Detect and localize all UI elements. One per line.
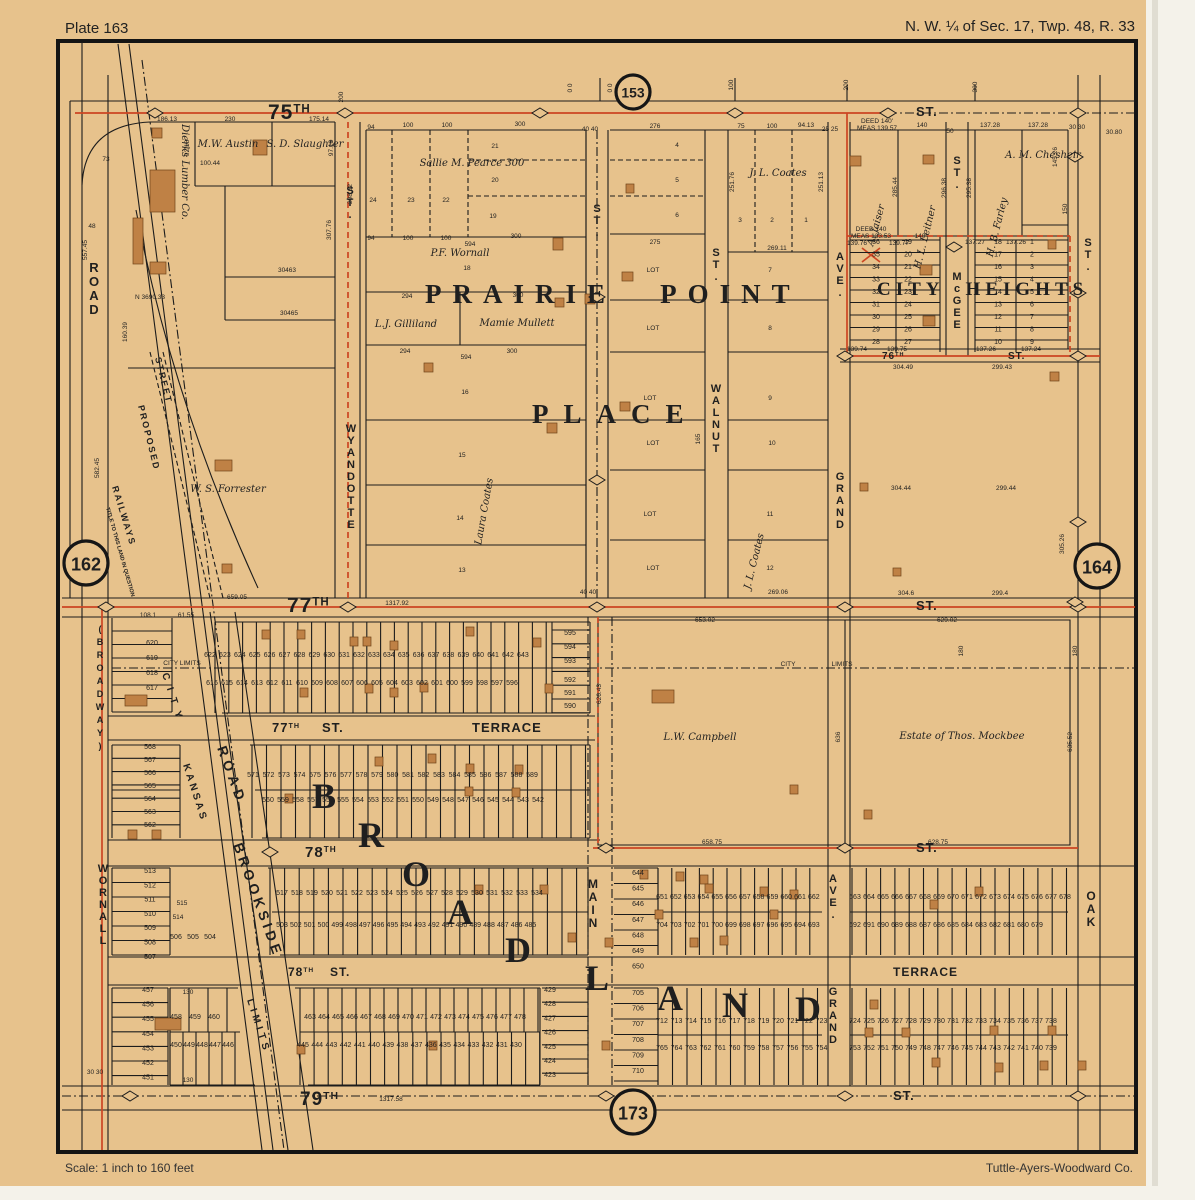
dimension-label: 94: [367, 235, 375, 242]
lot-number: 628: [294, 652, 306, 659]
dimension-label: 300: [515, 121, 526, 128]
lot-number: 669: [933, 894, 945, 901]
building-footprint: [923, 316, 935, 326]
dimension-label: 635.52: [1067, 732, 1074, 752]
lot-number: 731: [947, 1018, 959, 1025]
lot-number: 12: [994, 314, 1002, 321]
lot-number: 667: [905, 894, 917, 901]
lot-number: 648: [632, 932, 644, 939]
lot-number: 765: [656, 1045, 668, 1052]
lot-number: 647: [632, 917, 644, 924]
lot-number: 594: [564, 644, 576, 651]
street-ordinal-suffix: TH: [303, 967, 314, 974]
dimension-label: 100: [403, 122, 414, 129]
dimension-label: 100: [403, 235, 414, 242]
plat-map-sheet: { "header": {"left": "Plate 163", "right…: [0, 0, 1195, 1200]
lot-number: 644: [632, 870, 644, 877]
lot-number: 469: [388, 1014, 400, 1021]
lot-number: 599: [461, 680, 473, 687]
subdivision-name: PRAIRIE POINT: [425, 279, 801, 309]
lot-number: 693: [808, 922, 820, 929]
street-suffix-label: ST.: [322, 720, 344, 735]
building-footprint: [363, 637, 371, 646]
plate-ref-162: 162: [64, 541, 108, 585]
lot-number: 696: [767, 922, 779, 929]
street-name-vertical: MAIN: [588, 877, 598, 930]
dimension-label: 175.14: [309, 116, 329, 123]
lot-number: 657: [739, 894, 751, 901]
lot-number: 424: [544, 1058, 556, 1065]
dimension-label: 137.28: [980, 122, 1000, 129]
building-footprint: [350, 637, 358, 646]
building-footprint: [375, 757, 383, 766]
lot-number: 467: [360, 1014, 372, 1021]
building-footprint: [930, 900, 938, 909]
lot-number: 11: [994, 327, 1001, 334]
lot-number: 660: [780, 894, 792, 901]
subdivision-name-broadland-letter: A: [657, 978, 683, 1018]
lot-number: 705: [632, 990, 644, 997]
lot-number: 443: [326, 1042, 338, 1049]
dimension-label: 30 30: [1069, 124, 1086, 131]
lot-number: 28: [872, 339, 880, 346]
lot-number: 502: [290, 922, 302, 929]
dimension-label: 100.44: [200, 160, 220, 167]
lot-number: 31: [872, 302, 880, 309]
lot-number: 656: [725, 894, 737, 901]
dimension-label: 50: [946, 128, 954, 135]
dimension-label: 100: [442, 122, 453, 129]
lot-number: 588: [511, 772, 523, 779]
dimension-label: CITY: [781, 661, 796, 668]
lot-number: 559: [277, 797, 289, 804]
dimension-label: LIMITS: [832, 661, 854, 668]
street-name-vertical: GRAND: [829, 986, 838, 1046]
dimension-label: 299.44: [996, 485, 1016, 492]
dimension-label: 137.27: [965, 239, 985, 246]
lot-number: 2: [1030, 252, 1034, 259]
lot-number: 532: [501, 890, 513, 897]
dimension-label: 18: [463, 265, 471, 272]
dimension-label: 24: [369, 197, 377, 204]
lot-number: 455: [142, 1016, 154, 1023]
lot-number: 555: [337, 797, 349, 804]
building-footprint: [390, 641, 398, 650]
lot-number: 747: [933, 1045, 945, 1052]
lot-number: 460: [208, 1014, 220, 1021]
dimension-label: 515: [177, 900, 188, 907]
lot-number: 25: [904, 314, 912, 321]
lot-number: 494: [400, 922, 412, 929]
lot-number: 735: [1003, 1018, 1015, 1025]
lot-number: 605: [371, 680, 383, 687]
owner-label: M.W. Austin: [197, 139, 259, 150]
lot-number: 729: [919, 1018, 931, 1025]
lot-number: 8: [1030, 327, 1034, 334]
dimension-label: 30465: [280, 310, 298, 317]
lot-number: 533: [516, 890, 528, 897]
lot-number: 753: [849, 1045, 861, 1052]
lot-number: 496: [373, 922, 385, 929]
lot-number: 745: [961, 1045, 973, 1052]
lot-number: 638: [443, 652, 455, 659]
dimension-label: 0 0: [607, 83, 614, 92]
street-suffix-label: ST.: [916, 598, 938, 613]
lot-number: 450: [170, 1042, 182, 1049]
lot-number: 690: [877, 922, 889, 929]
lot-number: 452: [142, 1060, 154, 1067]
dimension-label: 653.02: [695, 617, 715, 624]
lot-number: 709: [632, 1052, 644, 1059]
dimension-label: 300: [511, 233, 522, 240]
dimension-label: 19: [489, 213, 497, 220]
lot-number: 518: [291, 890, 303, 897]
lot-number: 590: [564, 703, 576, 710]
lot-number: 655: [711, 894, 723, 901]
lot-number: 444: [311, 1042, 323, 1049]
building-footprint: [790, 785, 798, 794]
lot-number: 568: [144, 744, 156, 751]
lot-number: 701: [698, 922, 710, 929]
street-suffix-label: ST.: [330, 965, 350, 979]
lot-number: 700: [711, 922, 723, 929]
dimension-label: 100: [441, 235, 452, 242]
building-footprint: [128, 830, 137, 839]
lot-number: 674: [1003, 894, 1015, 901]
dimension-label: 275: [650, 239, 661, 246]
lot-number: 639: [457, 652, 469, 659]
lot-number: 548: [442, 797, 454, 804]
scan-edge-right-shadow: [1152, 0, 1158, 1200]
lot-number: 580: [387, 772, 399, 779]
lot-number: 640: [472, 652, 484, 659]
lot-number: 449: [183, 1042, 195, 1049]
dimension-label: 230: [225, 116, 236, 123]
dimension-label: 251.13: [818, 172, 825, 192]
lot-number: 634: [383, 652, 395, 659]
lot-number: 739: [1045, 1045, 1057, 1052]
dimension-label: 108.1: [140, 612, 157, 619]
dimension-label: 137.28: [1028, 122, 1048, 129]
building-footprint: [1048, 240, 1056, 249]
lot-number: 600: [446, 680, 458, 687]
owner-label: Estate of Thos. Mockbee: [898, 731, 1024, 742]
building-footprint: [902, 1028, 910, 1037]
plate-ref-173: 173: [611, 1090, 655, 1134]
street-suffix-label: TERRACE: [472, 720, 542, 735]
dimension-label: 1: [804, 217, 808, 224]
lot-number: 521: [336, 890, 348, 897]
dimension-label: 100: [767, 123, 778, 130]
lot-number: 751: [877, 1045, 889, 1052]
lot-number: 456: [142, 1002, 154, 1009]
lot-number: 749: [905, 1045, 917, 1052]
lot-number: 507: [144, 954, 156, 961]
dimension-label: 180: [1072, 645, 1079, 656]
lot-number: 678: [1059, 894, 1071, 901]
dimension-label: 300: [507, 348, 518, 355]
street-number: 77: [287, 594, 312, 617]
lot-number: 692: [849, 922, 861, 929]
building-footprint: [390, 688, 398, 697]
dimension-label: 659.05: [227, 594, 247, 601]
street-number: 79: [300, 1089, 323, 1110]
dimension-label: 160.39: [122, 322, 129, 342]
building-footprint: [133, 218, 143, 264]
lot-number: 468: [374, 1014, 386, 1021]
dimension-label: 10: [768, 440, 776, 447]
owner-label: A. M. Chesheir: [1004, 150, 1082, 161]
dimension-label: 3: [738, 217, 742, 224]
lot-number: 730: [933, 1018, 945, 1025]
lot-number: 714: [685, 1018, 697, 1025]
lot-number: 501: [304, 922, 316, 929]
lot-number: 440: [368, 1042, 380, 1049]
dimension-label: 9: [768, 395, 772, 402]
lot-number: 633: [368, 652, 380, 659]
dimension-label: MEAS 139.57: [857, 125, 897, 132]
lot-number: 474: [458, 1014, 470, 1021]
dimension-label: 13: [458, 567, 466, 574]
dimension-label: 30463: [278, 267, 296, 274]
dimension-label: 251.76: [729, 172, 736, 192]
dimension-label: CITY LIMITS: [163, 660, 201, 667]
lot-number: 459: [189, 1014, 201, 1021]
dimension-label: 139.74: [847, 346, 867, 353]
lot-number: 445: [297, 1042, 309, 1049]
lot-number: 470: [402, 1014, 414, 1021]
dimension-label: 200: [338, 91, 345, 102]
lot-number: 16: [994, 264, 1002, 271]
dimension-label: LOT: [647, 440, 660, 447]
building-footprint: [893, 568, 901, 576]
subdivision-name-broadland-letter: D: [795, 989, 821, 1029]
subdivision-name: PLACE: [532, 399, 699, 429]
lot-number: 498: [345, 922, 357, 929]
subdivision-name-broadland-letter: L: [585, 958, 609, 998]
lot-number: 602: [416, 680, 428, 687]
dimension-label: LOT: [647, 565, 660, 572]
dimension-label: 30 30: [87, 1069, 104, 1076]
lot-number: 622: [204, 652, 216, 659]
dimension-label: 75: [737, 123, 745, 130]
dimension-label: N 3690.33: [135, 294, 165, 301]
lot-number: 703: [670, 922, 682, 929]
lot-number: 505: [187, 934, 199, 941]
lot-number: 435: [439, 1042, 451, 1049]
dimension-label: DEED 140': [861, 118, 893, 125]
lot-number: 473: [444, 1014, 456, 1021]
dimension-label: 139.76: [847, 240, 867, 247]
building-footprint: [222, 564, 232, 573]
plate-ref-number: 164: [1082, 557, 1112, 577]
lot-number: 595: [564, 630, 576, 637]
building-footprint: [995, 1063, 1003, 1072]
lot-number: 679: [1031, 922, 1043, 929]
dimension-label: 130: [183, 1077, 194, 1084]
lot-number: 553: [367, 797, 379, 804]
lot-number: 637: [428, 652, 440, 659]
dimension-label: 269.11: [767, 245, 787, 252]
lot-number: 425: [544, 1044, 556, 1051]
lot-number: 682: [989, 922, 1001, 929]
street-ordinal-suffix: TH: [895, 352, 904, 358]
lot-number: 523: [366, 890, 378, 897]
dimension-label: 269.06: [768, 589, 788, 596]
lot-number: 471: [416, 1014, 428, 1021]
lot-number: 513: [144, 868, 156, 875]
lot-number: 664: [863, 894, 875, 901]
dimension-label: 304.49: [893, 364, 913, 371]
lot-number: 649: [632, 948, 644, 955]
lot-number: 759: [743, 1045, 755, 1052]
lot-number: 542: [532, 797, 544, 804]
subdivision-name-broadland-letter: O: [402, 854, 430, 894]
lot-number: 564: [144, 796, 156, 803]
lot-number: 733: [975, 1018, 987, 1025]
dimension-label: 582.45: [94, 458, 101, 478]
lot-number: 464: [318, 1014, 330, 1021]
building-footprint: [655, 910, 663, 919]
lot-number: 746: [947, 1045, 959, 1052]
lot-number: 587: [495, 772, 507, 779]
dimension-label: 7: [768, 267, 772, 274]
dimension-label: 14: [456, 515, 464, 522]
lot-number: 476: [486, 1014, 498, 1021]
dimension-label: 21: [491, 143, 499, 150]
lot-number: 547: [457, 797, 469, 804]
lot-number: 764: [671, 1045, 683, 1052]
building-footprint: [923, 155, 934, 164]
dimension-label: 40 40: [580, 589, 597, 596]
lot-number: 720: [772, 1018, 784, 1025]
street-number: 76: [882, 351, 895, 362]
lot-number: 665: [877, 894, 889, 901]
lot-number: 661: [794, 894, 806, 901]
dimension-label: 1317.92: [385, 600, 409, 607]
publisher: Tuttle-Ayers-Woodward Co.: [986, 1161, 1133, 1175]
dimension-label: 307.76: [326, 220, 333, 240]
lot-number: 688: [905, 922, 917, 929]
dimension-label: 305.26: [1059, 534, 1066, 554]
building-footprint: [1078, 1061, 1086, 1070]
lot-number: 702: [684, 922, 696, 929]
lot-number: 549: [427, 797, 439, 804]
dimension-label: 22: [442, 197, 450, 204]
lot-number: 432: [482, 1042, 494, 1049]
building-footprint: [770, 910, 778, 919]
lot-number: 635: [398, 652, 410, 659]
building-footprint: [1050, 372, 1059, 381]
lot-number: 610: [296, 680, 308, 687]
lot-number: 757: [772, 1045, 784, 1052]
dimension-label: 30.80: [1106, 129, 1123, 136]
lot-number: 585: [464, 772, 476, 779]
lot-number: 742: [1003, 1045, 1015, 1052]
lot-number: 726: [877, 1018, 889, 1025]
lot-number: 738: [1045, 1018, 1057, 1025]
lot-number: 737: [1031, 1018, 1043, 1025]
lot-number: 684: [961, 922, 973, 929]
lot-number: 485: [525, 922, 537, 929]
dimension-label: 165: [695, 433, 702, 444]
lot-number: 672: [975, 894, 987, 901]
dimension-label: LOT: [647, 325, 660, 332]
lot-number: 754: [816, 1045, 828, 1052]
lot-number: 663: [849, 894, 861, 901]
lot-number: 543: [517, 797, 529, 804]
street-number: 78: [305, 844, 324, 861]
building-footprint: [860, 483, 868, 491]
lot-number: 567: [144, 757, 156, 764]
lot-number: 466: [346, 1014, 358, 1021]
lot-number: 712: [656, 1018, 668, 1025]
street-suffix-label: ST.: [916, 104, 938, 119]
lot-number: 689: [891, 922, 903, 929]
lot-number: 30: [872, 314, 880, 321]
lot-number: 727: [891, 1018, 903, 1025]
lot-number: 704: [656, 922, 668, 929]
lot-number: 699: [725, 922, 737, 929]
dimension-label: 626.43: [596, 684, 603, 704]
lot-number: 430: [510, 1042, 522, 1049]
owner-label: W. S. Forrester: [190, 484, 267, 495]
lot-number: 487: [497, 922, 509, 929]
lot-number: 708: [632, 1037, 644, 1044]
owner-label: L.W. Campbell: [663, 732, 737, 743]
lot-number: 687: [919, 922, 931, 929]
lot-number: 531: [486, 890, 498, 897]
lot-number: 447: [209, 1042, 221, 1049]
plate-ref-number: 162: [71, 554, 101, 574]
lot-number: 581: [402, 772, 414, 779]
dimension-label: 300: [972, 81, 979, 92]
lot-number: 566: [144, 770, 156, 777]
lot-number: 465: [332, 1014, 344, 1021]
lot-number: 734: [989, 1018, 1001, 1025]
dimension-label: 15: [458, 452, 466, 459]
dimension-label: 285.44: [892, 177, 899, 197]
lot-number: 666: [891, 894, 903, 901]
lot-number: 654: [698, 894, 710, 901]
lot-number: 675: [1017, 894, 1029, 901]
lot-number: 750: [891, 1045, 903, 1052]
owner-label: L.J. Gilliland: [374, 319, 437, 330]
owner-label: J. L. Coates: [747, 168, 806, 179]
lot-number: 477: [500, 1014, 512, 1021]
lot-number: 442: [340, 1042, 352, 1049]
lot-number: 492: [428, 922, 440, 929]
lot-number: 685: [947, 922, 959, 929]
lot-number: 653: [684, 894, 696, 901]
lot-number: 437: [411, 1042, 423, 1049]
lot-number: 463: [304, 1014, 316, 1021]
owner-label: S. D. Slaughter: [267, 139, 345, 150]
dimension-label: 186.13: [157, 116, 177, 123]
lot-number: 517: [276, 890, 288, 897]
lot-number: 439: [382, 1042, 394, 1049]
lot-number: 21: [904, 264, 912, 271]
dimension-label: 40 40: [582, 126, 599, 133]
dimension-label: 1317.58: [379, 1096, 403, 1103]
lot-number: 616: [206, 680, 218, 687]
dimension-label: 6: [675, 212, 679, 219]
plate-ref-164: 164: [1075, 544, 1119, 588]
lot-number: 13: [994, 302, 1002, 309]
lot-number: 26: [904, 327, 912, 334]
dimension-label: 5: [675, 177, 679, 184]
lot-number: 453: [142, 1045, 154, 1052]
